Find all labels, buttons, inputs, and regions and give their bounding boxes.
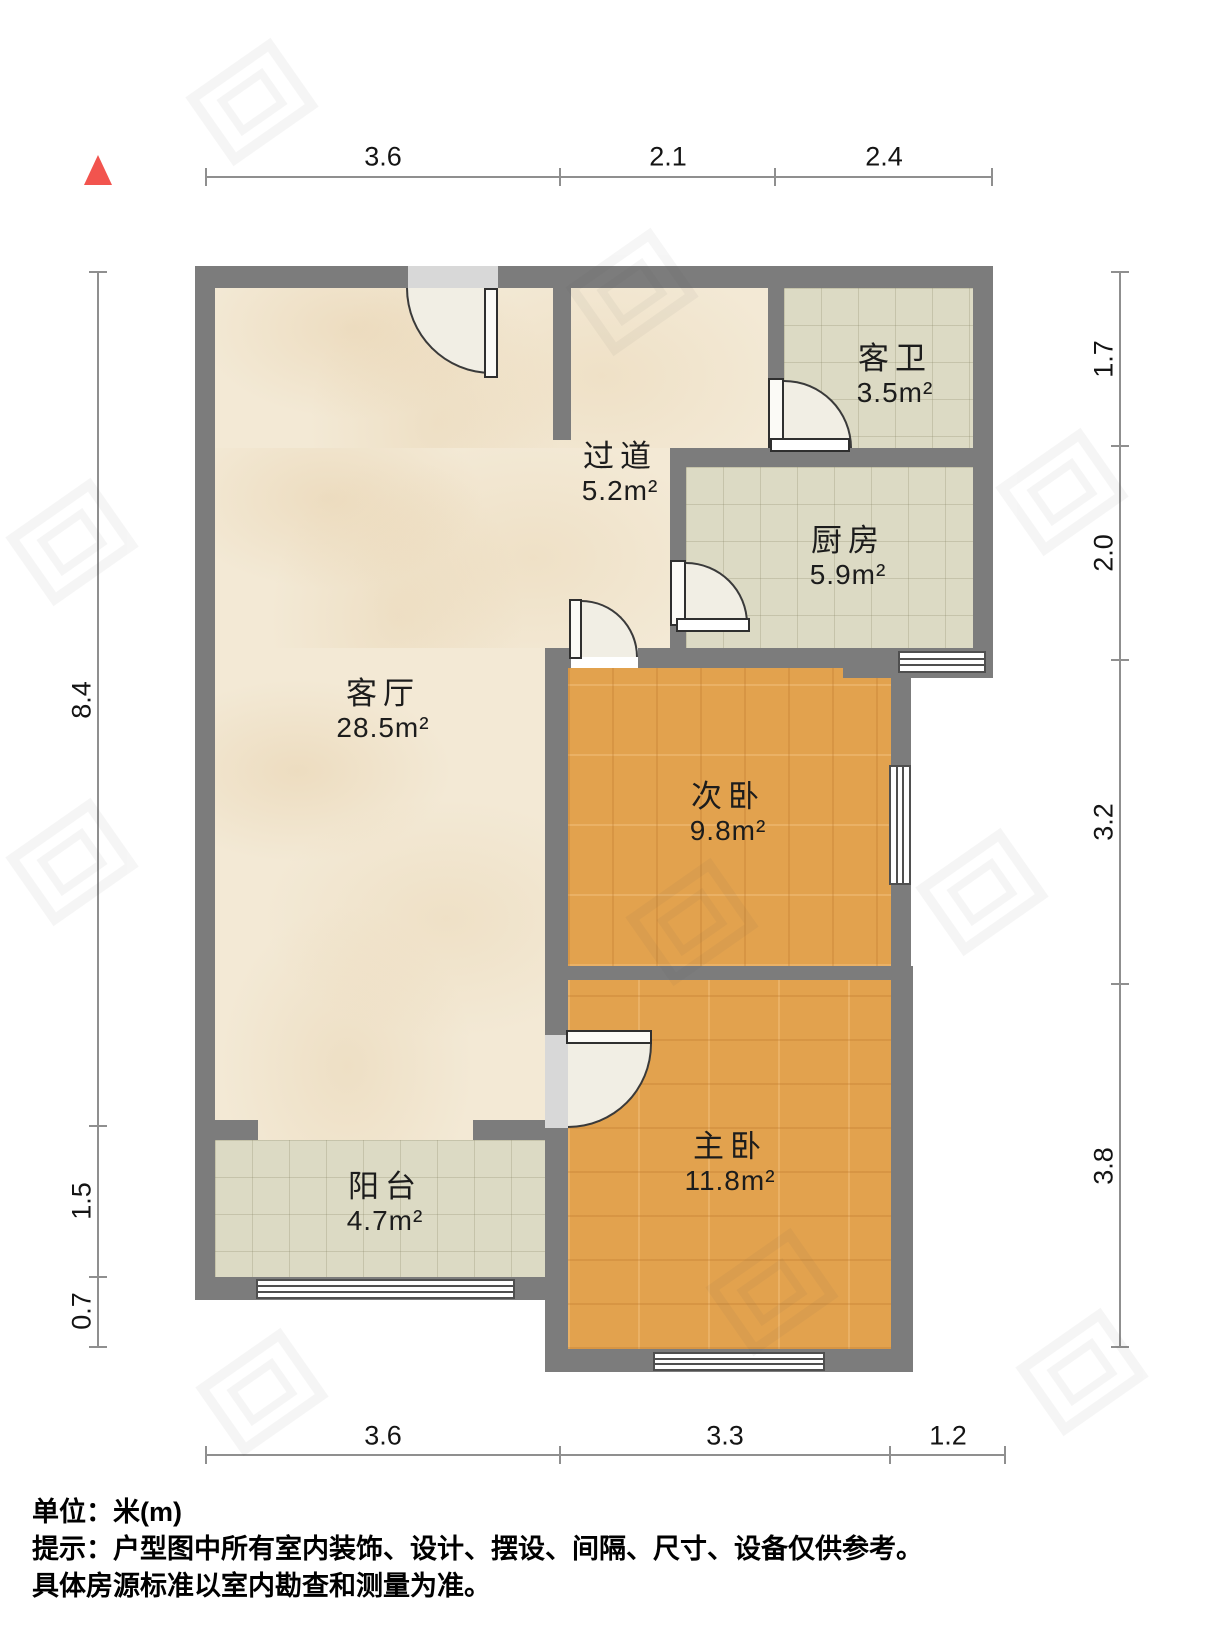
dim-top-1: 3.6 (364, 142, 402, 173)
watermark (185, 38, 318, 166)
kitchen-door-leaf (670, 560, 686, 626)
master-bedroom-window (653, 1352, 825, 1371)
dim-tick (1111, 271, 1129, 273)
room-name-kitchen: 厨房 (810, 523, 887, 558)
balcony-window (256, 1279, 515, 1299)
dim-tick (559, 168, 561, 186)
dim-tick (889, 1446, 891, 1464)
dim-tick (205, 1446, 207, 1464)
watermark (915, 828, 1048, 956)
dim-right-2: 2.0 (1089, 534, 1120, 572)
dim-bottom-1: 3.6 (364, 1421, 402, 1452)
footer-unit-line: 单位：米(m) (32, 1494, 923, 1531)
wall-left-outer (195, 266, 215, 1300)
room-area-kitchen: 5.9m² (810, 558, 887, 591)
dim-right-3: 3.2 (1089, 803, 1120, 841)
room-name-balcony: 阳台 (347, 1169, 424, 1204)
bathroom-door-sill (770, 438, 850, 452)
watermark (1015, 1308, 1148, 1436)
room-area-bathroom: 3.5m² (857, 376, 934, 409)
wall-balcony-stub-left (195, 1120, 258, 1140)
bedroom2-window (889, 765, 911, 885)
dim-bottom-line (206, 1454, 1006, 1456)
room-area-master: 11.8m² (684, 1164, 775, 1197)
room-name-living: 客厅 (336, 676, 429, 711)
dim-tick (89, 271, 107, 273)
room-label-bedroom2: 次卧 9.8m² (690, 779, 767, 847)
dim-tick (1111, 1346, 1129, 1348)
dim-tick (559, 1446, 561, 1464)
room-area-bedroom2: 9.8m² (690, 814, 767, 847)
dim-bottom-2: 3.3 (706, 1421, 744, 1452)
dim-tick (89, 1346, 107, 1348)
wall-kitchen-left-upper (670, 448, 686, 560)
footer-disclaimer-line1: 提示：户型图中所有室内装饰、设计、摆设、间隔、尺寸、设备仅供参考。 (32, 1531, 923, 1568)
dim-tick (774, 168, 776, 186)
dim-tick (89, 1125, 107, 1127)
kitchen-window (898, 651, 986, 673)
room-area-living: 28.5m² (336, 711, 429, 744)
dim-tick (991, 168, 993, 186)
dim-right-1: 1.7 (1089, 340, 1120, 378)
room-name-bathroom: 客卫 (857, 341, 934, 376)
watermark (5, 478, 138, 606)
watermark (5, 798, 138, 926)
bedroom2-door-leaf (569, 599, 582, 659)
entrance-doorway (408, 266, 498, 288)
dim-top-2: 2.1 (649, 142, 687, 173)
dim-left-2: 1.5 (67, 1182, 98, 1220)
room-area-balcony: 4.7m² (347, 1204, 424, 1237)
floor-plan: 客厅 28.5m² 过道 5.2m² 客卫 3.5m² 厨房 5.9m² 次卧 … (0, 0, 1220, 1649)
dim-top-line (206, 176, 993, 178)
watermark (195, 1328, 328, 1456)
north-arrow-icon (84, 155, 112, 185)
room-name-hallway: 过道 (582, 439, 659, 474)
wall-right-outer-top (973, 266, 993, 678)
dim-tick (1111, 983, 1129, 985)
dim-tick (205, 168, 207, 186)
footer-notes: 单位：米(m) 提示：户型图中所有室内装饰、设计、摆设、间隔、尺寸、设备仅供参考… (32, 1494, 923, 1605)
kitchen-door-sill (676, 618, 750, 632)
dim-top-3: 2.4 (865, 142, 903, 173)
dim-tick (89, 1276, 107, 1278)
master-door-leaf (566, 1030, 652, 1044)
room-area-hallway: 5.2m² (582, 474, 659, 507)
dim-bottom-3: 1.2 (929, 1421, 967, 1452)
dim-left-3: 0.7 (67, 1292, 98, 1330)
footer-disclaimer-line2: 具体房源标准以室内勘查和测量为准。 (32, 1568, 923, 1605)
room-label-kitchen: 厨房 5.9m² (810, 523, 887, 591)
room-label-hallway: 过道 5.2m² (582, 439, 659, 507)
wall-top-left (195, 266, 408, 288)
wall-hallway-stub (553, 288, 571, 440)
room-label-bathroom: 客卫 3.5m² (857, 341, 934, 409)
wall-bedroom2-top-right (638, 648, 911, 668)
dim-left-1: 8.4 (67, 681, 98, 719)
wall-master-right (891, 966, 913, 1372)
master-doorway (545, 1035, 568, 1128)
wall-bedroom-left-upper (545, 648, 568, 1035)
room-label-master: 主卧 11.8m² (684, 1129, 775, 1197)
room-label-living: 客厅 28.5m² (336, 676, 429, 744)
wall-bedroom-divider (545, 966, 911, 980)
wall-bathroom-left (768, 288, 784, 378)
dim-right-4: 3.8 (1089, 1147, 1120, 1185)
dim-tick (1111, 445, 1129, 447)
wall-top-right (498, 266, 993, 288)
wall-bedroom-left-lower (545, 1128, 568, 1372)
room-label-balcony: 阳台 4.7m² (347, 1169, 424, 1237)
room-name-master: 主卧 (684, 1129, 775, 1164)
entrance-door-leaf (484, 288, 498, 378)
dim-tick (1111, 659, 1129, 661)
room-name-bedroom2: 次卧 (690, 779, 767, 814)
dim-tick (1004, 1446, 1006, 1464)
